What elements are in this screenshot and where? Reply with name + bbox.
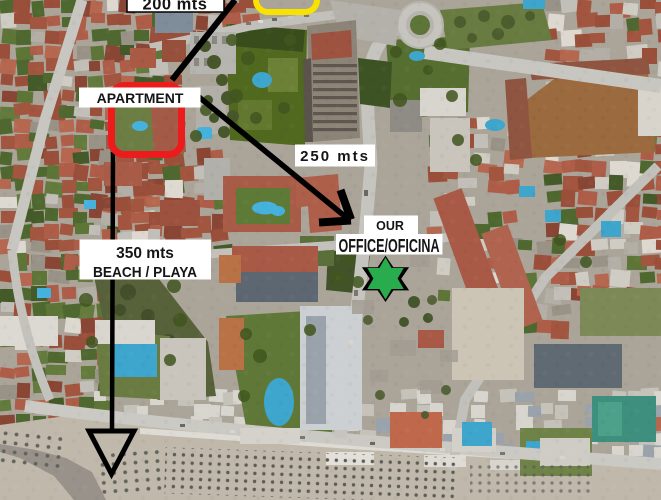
svg-text:200 mts: 200 mts (143, 0, 208, 14)
svg-text:250 mts: 250 mts (300, 148, 370, 165)
svg-text:350 mts: 350 mts (116, 245, 174, 262)
svg-text:APARTMENT: APARTMENT (97, 90, 184, 106)
svg-text:OUR: OUR (376, 219, 404, 233)
svg-text:OFFICE/OFICINA: OFFICE/OFICINA (339, 236, 440, 256)
svg-text:BEACH / PLAYA: BEACH / PLAYA (93, 264, 197, 281)
